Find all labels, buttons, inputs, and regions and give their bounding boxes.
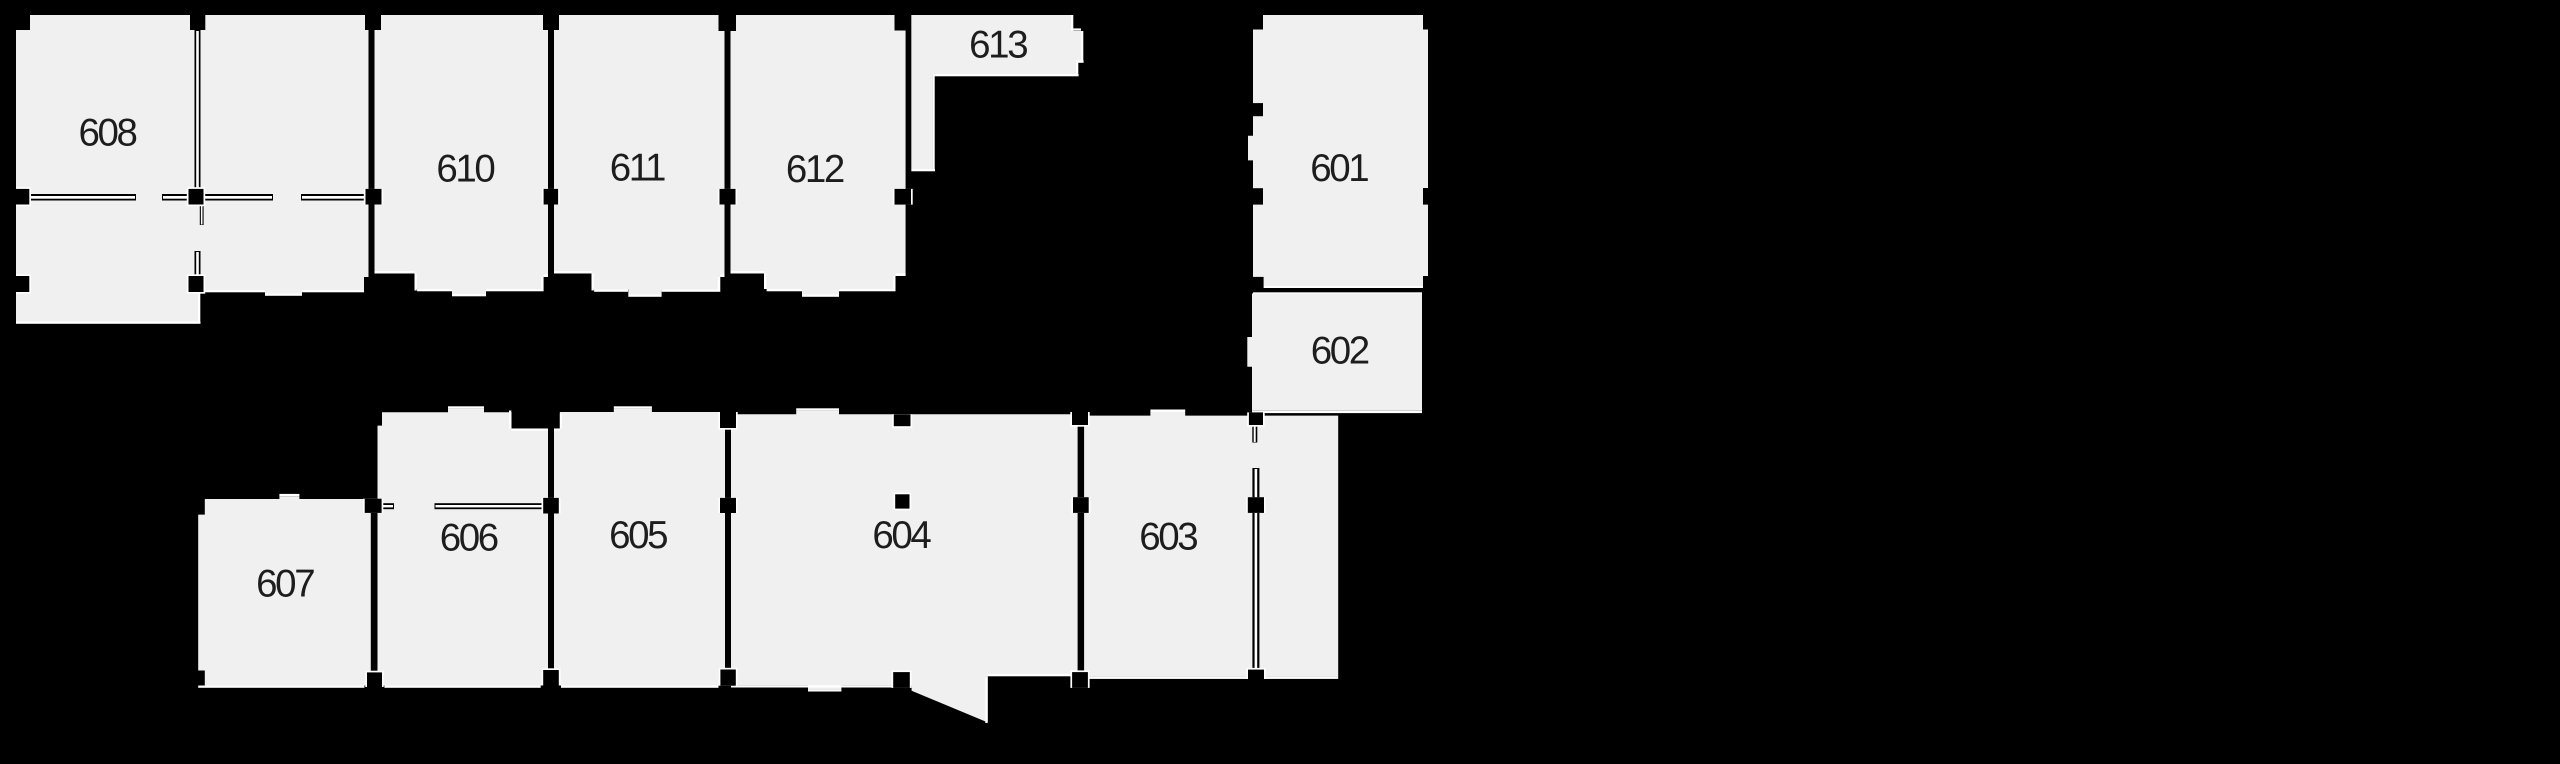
svg-text:613: 613 [969, 24, 1027, 67]
svg-text:611: 611 [610, 146, 665, 189]
svg-text:606: 606 [440, 517, 498, 560]
svg-text:603: 603 [1139, 516, 1197, 559]
svg-text:604: 604 [872, 514, 931, 557]
svg-text:612: 612 [786, 148, 844, 191]
svg-text:602: 602 [1311, 330, 1369, 373]
svg-text:607: 607 [256, 563, 314, 606]
svg-text:601: 601 [1310, 147, 1368, 190]
svg-text:610: 610 [436, 148, 494, 191]
svg-text:605: 605 [609, 514, 667, 557]
svg-text:608: 608 [78, 111, 136, 154]
